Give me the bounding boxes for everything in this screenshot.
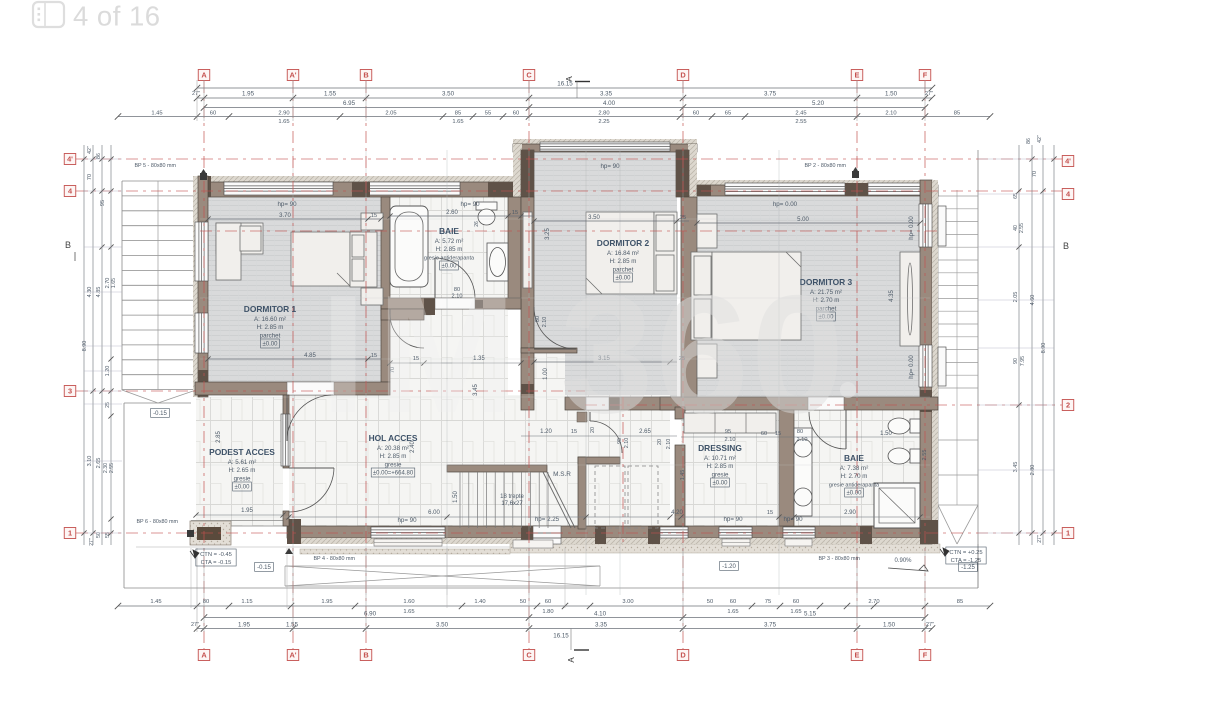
svg-text:60: 60 bbox=[210, 111, 216, 117]
svg-text:hp= 0.00: hp= 0.00 bbox=[909, 355, 915, 379]
svg-text:2: 2 bbox=[1066, 401, 1070, 410]
svg-text:5.15: 5.15 bbox=[804, 611, 817, 618]
svg-text:A: 5.72 m²: A: 5.72 m² bbox=[435, 238, 464, 245]
svg-text:4.20: 4.20 bbox=[671, 510, 683, 516]
svg-text:2.80: 2.80 bbox=[598, 111, 609, 117]
svg-text:2.55: 2.55 bbox=[1019, 223, 1025, 233]
svg-text:60: 60 bbox=[730, 599, 736, 605]
svg-text:hp= 90: hp= 90 bbox=[277, 201, 297, 208]
svg-text:4 of 16: 4 of 16 bbox=[73, 1, 161, 32]
svg-text:B: B bbox=[363, 651, 368, 660]
svg-text:50: 50 bbox=[520, 599, 526, 605]
svg-text:3.35: 3.35 bbox=[600, 91, 613, 98]
svg-text:42'': 42'' bbox=[1037, 135, 1043, 143]
svg-text:2.90: 2.90 bbox=[844, 510, 856, 516]
svg-text:CTA = -1.25: CTA = -1.25 bbox=[951, 558, 982, 564]
svg-text:4.35: 4.35 bbox=[889, 290, 895, 302]
svg-text:PODEST ACCES: PODEST ACCES bbox=[209, 447, 275, 457]
svg-text:2.55: 2.55 bbox=[795, 119, 806, 125]
svg-text:70: 70 bbox=[1032, 171, 1038, 177]
svg-text:27'': 27'' bbox=[191, 622, 199, 628]
svg-text:6.00: 6.00 bbox=[428, 510, 440, 516]
svg-text:H: 2.85 m: H: 2.85 m bbox=[707, 463, 734, 470]
svg-text:2.70: 2.70 bbox=[868, 599, 879, 605]
svg-text:26: 26 bbox=[474, 221, 480, 227]
svg-text:3.75: 3.75 bbox=[764, 91, 777, 98]
svg-text:27'': 27'' bbox=[925, 91, 933, 97]
svg-text:4.85: 4.85 bbox=[304, 353, 316, 359]
svg-text:1.50: 1.50 bbox=[883, 622, 896, 629]
svg-text:4.10: 4.10 bbox=[594, 611, 607, 618]
svg-text:3.75: 3.75 bbox=[764, 622, 777, 629]
svg-text:BP 6 - 80x80 mm: BP 6 - 80x80 mm bbox=[136, 519, 178, 525]
svg-text:27'': 27'' bbox=[926, 622, 934, 628]
svg-text:H: 2.85 m: H: 2.85 m bbox=[257, 324, 284, 331]
svg-text:80: 80 bbox=[535, 316, 541, 322]
svg-text:1.65: 1.65 bbox=[452, 119, 463, 125]
svg-text:3.50: 3.50 bbox=[442, 91, 455, 98]
svg-text:1.00: 1.00 bbox=[543, 368, 549, 380]
svg-text:2.10: 2.10 bbox=[542, 317, 548, 328]
svg-text:A': A' bbox=[289, 71, 296, 80]
svg-text:2.65: 2.65 bbox=[96, 458, 102, 469]
svg-text:BAIE: BAIE bbox=[844, 453, 864, 463]
svg-text:4': 4' bbox=[1065, 157, 1071, 166]
svg-text:H: 2.85 m: H: 2.85 m bbox=[436, 246, 463, 253]
svg-text:±0.00=+664.80: ±0.00=+664.80 bbox=[373, 471, 414, 477]
svg-text:5.00: 5.00 bbox=[797, 217, 809, 223]
svg-text:A: 16.84 m²: A: 16.84 m² bbox=[607, 250, 639, 257]
svg-text:C: C bbox=[526, 71, 532, 80]
svg-text:60: 60 bbox=[545, 599, 551, 605]
svg-text:A: A bbox=[201, 651, 207, 660]
svg-text:1.95: 1.95 bbox=[238, 622, 251, 629]
svg-text:2.05: 2.05 bbox=[385, 111, 396, 117]
svg-text:17,6x27: 17,6x27 bbox=[501, 501, 523, 507]
svg-text:hp= 90: hp= 90 bbox=[460, 201, 480, 208]
svg-text:1.55: 1.55 bbox=[324, 91, 337, 98]
svg-text:3.35: 3.35 bbox=[595, 622, 608, 629]
svg-text:1.65: 1.65 bbox=[790, 609, 801, 615]
svg-text:F: F bbox=[923, 651, 928, 660]
svg-text:gresie antiderapanta: gresie antiderapanta bbox=[829, 482, 880, 488]
svg-text:B: B bbox=[363, 71, 368, 80]
svg-text:-1.20: -1.20 bbox=[722, 564, 736, 570]
svg-text:1.50: 1.50 bbox=[880, 431, 892, 437]
svg-text:1.40: 1.40 bbox=[474, 599, 485, 605]
svg-text:hp= 0.00: hp= 0.00 bbox=[773, 201, 798, 208]
svg-text:25: 25 bbox=[105, 402, 111, 408]
svg-text:2.05: 2.05 bbox=[1013, 292, 1019, 303]
svg-text:16.15: 16.15 bbox=[557, 81, 573, 88]
svg-text:1.95: 1.95 bbox=[242, 91, 255, 98]
svg-text:1: 1 bbox=[68, 529, 72, 538]
svg-text:1.95: 1.95 bbox=[321, 599, 332, 605]
svg-text:BAIE: BAIE bbox=[439, 226, 459, 236]
svg-text:D: D bbox=[680, 71, 686, 80]
svg-text:gresie: gresie bbox=[234, 475, 251, 482]
svg-text:H: 2.85 m: H: 2.85 m bbox=[380, 453, 407, 460]
svg-text:DORMITOR 2: DORMITOR 2 bbox=[597, 238, 650, 248]
svg-text:2.45: 2.45 bbox=[795, 111, 806, 117]
svg-text:1.45: 1.45 bbox=[150, 599, 161, 605]
svg-text:1.50: 1.50 bbox=[453, 491, 459, 503]
svg-text:-1.25: -1.25 bbox=[961, 565, 975, 571]
svg-text:H: 2.70 m: H: 2.70 m bbox=[841, 473, 868, 480]
svg-text:15: 15 bbox=[767, 510, 773, 516]
svg-text:5.20: 5.20 bbox=[812, 100, 825, 107]
svg-text:1: 1 bbox=[1066, 529, 1070, 538]
svg-text:1.65: 1.65 bbox=[111, 278, 117, 288]
svg-text:3.45: 3.45 bbox=[1013, 462, 1019, 473]
svg-text:M.S.R: M.S.R bbox=[553, 471, 571, 478]
svg-text:A: 16.60 m²: A: 16.60 m² bbox=[254, 316, 286, 323]
svg-text:1.45: 1.45 bbox=[680, 470, 686, 481]
svg-text:E: E bbox=[855, 71, 860, 80]
svg-text:BP 3 - 80x80 mm: BP 3 - 80x80 mm bbox=[818, 556, 860, 562]
svg-text:2.10: 2.10 bbox=[885, 111, 896, 117]
svg-text:C: C bbox=[526, 651, 532, 660]
svg-text:parchet: parchet bbox=[260, 332, 281, 339]
svg-text:3.25: 3.25 bbox=[545, 228, 551, 240]
svg-text:2.60: 2.60 bbox=[446, 210, 458, 216]
svg-text:86: 86 bbox=[1026, 138, 1032, 144]
svg-text:F: F bbox=[923, 71, 928, 80]
svg-text:gresie: gresie bbox=[385, 461, 402, 468]
svg-text:27'': 27'' bbox=[1037, 535, 1043, 543]
svg-text:3.70: 3.70 bbox=[279, 213, 291, 219]
svg-text:±0.00: ±0.00 bbox=[713, 481, 729, 487]
svg-text:1.50: 1.50 bbox=[885, 91, 898, 98]
svg-text:A: A bbox=[201, 71, 207, 80]
svg-text:16.15: 16.15 bbox=[553, 633, 569, 640]
svg-text:A: 10.71 m²: A: 10.71 m² bbox=[704, 455, 736, 462]
svg-text:2.85: 2.85 bbox=[216, 431, 222, 443]
svg-text:B: B bbox=[1063, 241, 1069, 251]
svg-text:60: 60 bbox=[513, 111, 519, 117]
svg-text:1.45: 1.45 bbox=[151, 111, 162, 117]
svg-text:gresie: gresie bbox=[712, 471, 729, 478]
svg-text:1.65: 1.65 bbox=[727, 609, 738, 615]
svg-text:A: A bbox=[567, 657, 576, 663]
svg-text:A: 5.61 m²: A: 5.61 m² bbox=[228, 459, 257, 466]
svg-text:A': A' bbox=[289, 651, 296, 660]
svg-text:3.50: 3.50 bbox=[588, 215, 600, 221]
svg-text:1.60: 1.60 bbox=[403, 599, 414, 605]
svg-text:3.00: 3.00 bbox=[622, 599, 633, 605]
svg-text:15: 15 bbox=[512, 210, 518, 216]
svg-text:360: 360 bbox=[560, 260, 846, 448]
svg-text:1.65: 1.65 bbox=[403, 609, 414, 615]
svg-text:85: 85 bbox=[957, 599, 963, 605]
svg-text:50: 50 bbox=[707, 599, 713, 605]
svg-text:95: 95 bbox=[100, 200, 106, 206]
svg-text:1.95: 1.95 bbox=[241, 508, 253, 514]
svg-text:27'': 27'' bbox=[192, 91, 200, 97]
svg-text:hp= 90: hp= 90 bbox=[397, 517, 417, 524]
svg-text:86: 86 bbox=[96, 153, 102, 159]
svg-text:1.80: 1.80 bbox=[542, 609, 553, 615]
svg-text:75: 75 bbox=[765, 599, 771, 605]
svg-text:7.95: 7.95 bbox=[1020, 356, 1026, 366]
svg-text:3.50: 3.50 bbox=[436, 622, 449, 629]
svg-text:18 trepte: 18 trepte bbox=[500, 494, 524, 500]
svg-text:2.25: 2.25 bbox=[598, 119, 609, 125]
svg-text:42'': 42'' bbox=[87, 146, 93, 154]
svg-text:CTN = +0.25: CTN = +0.25 bbox=[949, 550, 982, 556]
svg-text:hp= 90: hp= 90 bbox=[600, 163, 620, 170]
svg-text:2.55: 2.55 bbox=[109, 463, 115, 473]
svg-text:80: 80 bbox=[203, 599, 209, 605]
svg-text:±0.00: ±0.00 bbox=[847, 491, 863, 497]
svg-text:H: 2.65 m: H: 2.65 m bbox=[229, 467, 256, 474]
svg-text:60: 60 bbox=[693, 111, 699, 117]
svg-text:2.90: 2.90 bbox=[278, 111, 289, 117]
svg-text:27'': 27'' bbox=[89, 538, 95, 546]
svg-text:90: 90 bbox=[1013, 358, 1019, 364]
svg-text:IM: IM bbox=[320, 260, 527, 448]
svg-text:BP 5 - 80x80 mm: BP 5 - 80x80 mm bbox=[134, 163, 176, 169]
svg-text:DORMITOR 1: DORMITOR 1 bbox=[244, 304, 297, 314]
svg-text:±0.00: ±0.00 bbox=[235, 485, 251, 491]
svg-text:D: D bbox=[680, 651, 686, 660]
svg-text:6.95: 6.95 bbox=[343, 100, 356, 107]
svg-text:3: 3 bbox=[68, 387, 72, 396]
svg-text:-0.15: -0.15 bbox=[257, 565, 271, 571]
svg-text:70: 70 bbox=[87, 174, 93, 180]
svg-text:55: 55 bbox=[485, 111, 491, 117]
svg-text:15: 15 bbox=[371, 213, 377, 219]
svg-text:85: 85 bbox=[954, 111, 960, 117]
svg-text:25: 25 bbox=[680, 215, 686, 221]
svg-text:1.20: 1.20 bbox=[540, 429, 552, 435]
svg-text:E: E bbox=[855, 651, 860, 660]
svg-text:65: 65 bbox=[725, 111, 731, 117]
svg-text:85: 85 bbox=[455, 111, 461, 117]
svg-text:A: 7.38 m²: A: 7.38 m² bbox=[840, 465, 869, 472]
svg-text:±0.00: ±0.00 bbox=[263, 342, 279, 348]
svg-text:2.55: 2.55 bbox=[922, 450, 928, 461]
svg-text:4.00: 4.00 bbox=[603, 100, 616, 107]
svg-text:1.65: 1.65 bbox=[278, 119, 289, 125]
svg-text:1.15: 1.15 bbox=[241, 599, 252, 605]
svg-text:1.55: 1.55 bbox=[286, 622, 299, 629]
svg-text:B: B bbox=[65, 240, 71, 250]
svg-text:CTA = -0.15: CTA = -0.15 bbox=[201, 560, 232, 566]
svg-text:-0.15: -0.15 bbox=[153, 411, 167, 417]
svg-text:4': 4' bbox=[67, 155, 73, 164]
svg-text:BP 4 - 80x80 mm: BP 4 - 80x80 mm bbox=[313, 556, 355, 562]
svg-text:BP 2 - 80x80 mm: BP 2 - 80x80 mm bbox=[804, 163, 846, 169]
svg-text:0.90%: 0.90% bbox=[894, 558, 912, 564]
svg-text:60: 60 bbox=[793, 599, 799, 605]
svg-text:hp= 0.00: hp= 0.00 bbox=[909, 216, 915, 240]
svg-text:CTN = -0.45: CTN = -0.45 bbox=[200, 552, 232, 558]
